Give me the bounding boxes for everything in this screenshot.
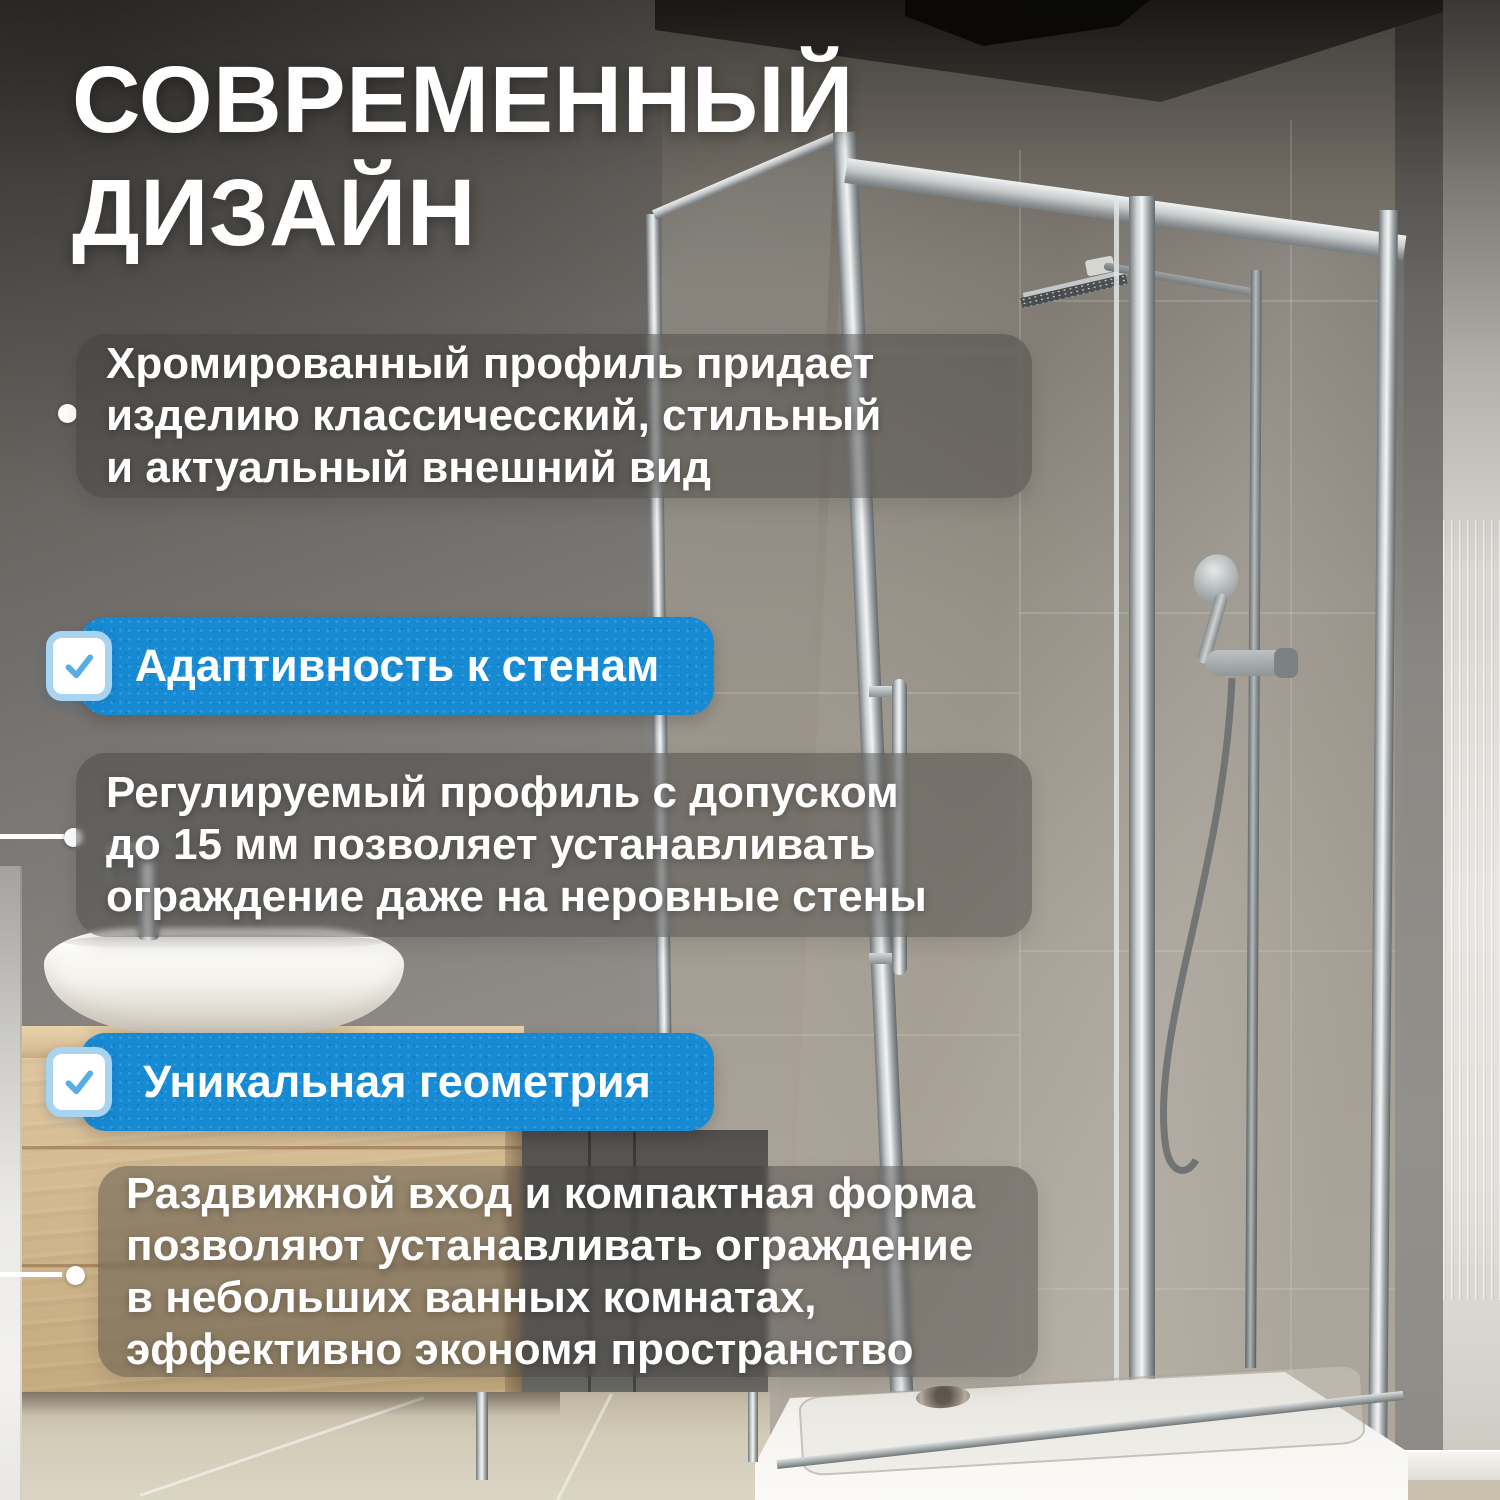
cabinet-leg xyxy=(748,1392,758,1462)
callout-line xyxy=(0,1272,62,1277)
feature-text-line: до 15 мм позволяет устанавливать xyxy=(106,819,1032,871)
feature-text-line: Хромированный профиль придает xyxy=(106,338,1032,390)
drawer-seam xyxy=(0,1146,522,1150)
glass-edge-line xyxy=(1114,196,1119,1422)
feature-text-adjustable-profile: Регулируемый профиль с допуском до 15 мм… xyxy=(76,753,1032,937)
feature-text-line: и актуальный внешний вид xyxy=(106,442,1032,494)
banner-label: Адаптивность к стенам xyxy=(135,640,660,692)
banner-label: Уникальная геометрия xyxy=(143,1056,651,1108)
checkmark-icon xyxy=(58,1061,100,1103)
feature-banner-walls: Адаптивность к стенам xyxy=(80,617,714,715)
door-center-profile xyxy=(1114,196,1158,1422)
feature-text-line: ограждение даже на неровные стены xyxy=(106,871,1032,923)
right-light-panel xyxy=(1443,0,1500,1500)
callout-dot-icon xyxy=(66,1266,85,1285)
feature-text-compact-form: Раздвижной вход и компактная форма позво… xyxy=(98,1166,1038,1377)
feature-text-line: эффективно экономя пространство xyxy=(126,1324,1038,1376)
feature-text-line: изделию классичесский, стильный xyxy=(106,390,1032,442)
floor-right xyxy=(1396,1480,1500,1500)
panel-pinstripes xyxy=(1443,520,1500,1300)
feature-text-line: позволяют устанавливать ограждение xyxy=(126,1220,1038,1272)
feature-text-chrome-profile: Хромированный профиль придает изделию кл… xyxy=(76,334,1032,498)
center-profile-bar xyxy=(1129,196,1155,1422)
feature-text-line: в небольших ванных комнатах, xyxy=(126,1272,1038,1324)
right-baseboard xyxy=(1396,1450,1500,1484)
vanity-leg xyxy=(476,1392,488,1480)
page-title: СОВРЕМЕННЫЙ ДИЗАЙН xyxy=(72,44,854,270)
callout-line xyxy=(0,834,64,839)
title-line-1: СОВРЕМЕННЫЙ xyxy=(72,44,854,157)
left-wall-trim xyxy=(0,866,22,1500)
checkmark-icon xyxy=(58,645,100,687)
feature-text-line: Регулируемый профиль с допуском xyxy=(106,767,1032,819)
product-marketing-image: СОВРЕМЕННЫЙ ДИЗАЙН Хромированный профиль… xyxy=(0,0,1500,1500)
checkbox-checked-icon xyxy=(46,631,112,701)
feature-text-line: Раздвижной вход и компактная форма xyxy=(126,1168,1038,1220)
feature-banner-geometry: Уникальная геометрия xyxy=(80,1033,714,1131)
floor-grout-line xyxy=(555,1393,613,1500)
title-line-2: ДИЗАЙН xyxy=(72,157,854,270)
checkbox-checked-icon xyxy=(46,1047,112,1117)
bullet-dot-icon xyxy=(58,404,77,423)
